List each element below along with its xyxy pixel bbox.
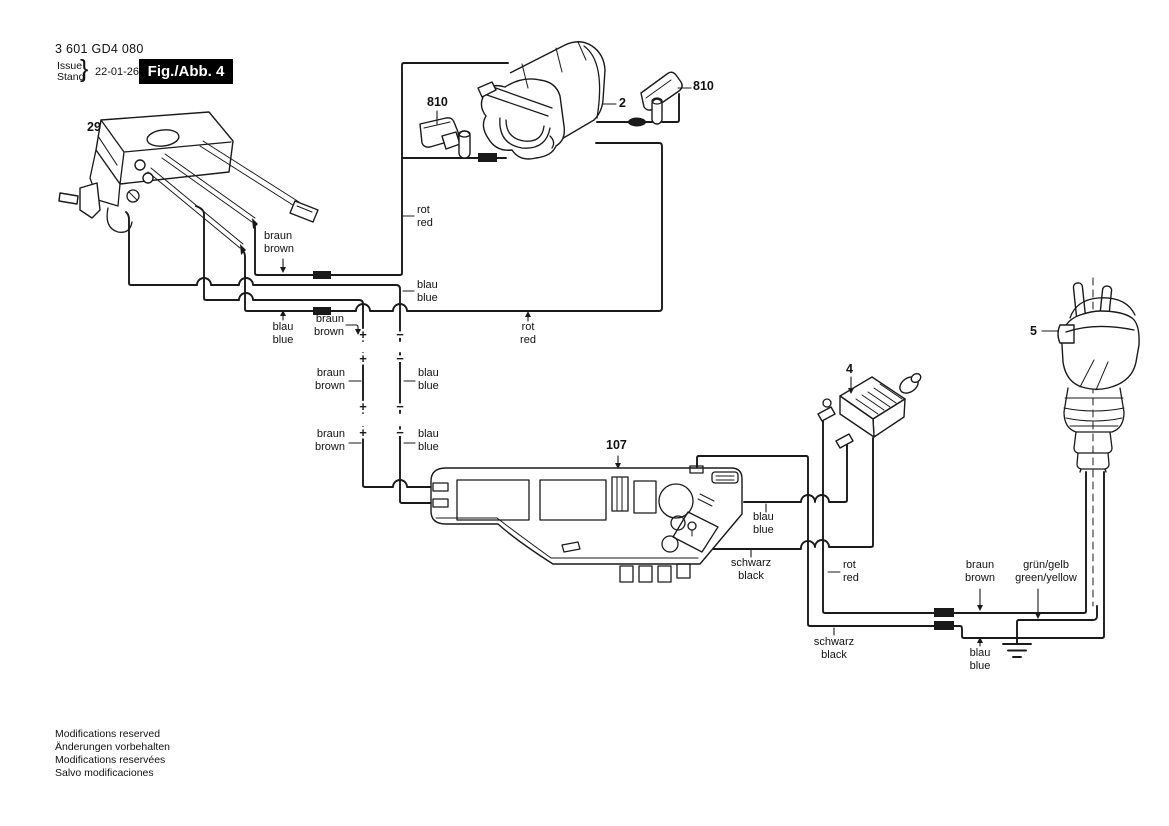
label-de: grün/gelb [1005, 559, 1087, 572]
wire-label-blau-plug: blau blue [964, 647, 996, 672]
part-label-29: 29 [87, 120, 101, 134]
wiring-diagram-canvas: + + + + − − − − [0, 0, 1169, 826]
crimp-left-brush [478, 153, 497, 162]
wire-label-rot-mid: rot red [512, 321, 544, 346]
label-en: blue [417, 292, 438, 305]
wiring-diagram-page: + + + + − − − − [0, 0, 1169, 826]
document-part-number: 3 601 GD4 080 [55, 42, 144, 56]
label-en: brown [958, 572, 1002, 585]
brace-glyph: } [80, 55, 88, 84]
issue-date: 22-01-26 [95, 66, 139, 78]
modifications-notice: Modifications reserved Änderungen vorbeh… [55, 728, 170, 780]
label-en: blue [753, 524, 774, 537]
wire-label-blau-board: blau blue [753, 511, 774, 536]
label-en: red [417, 217, 433, 230]
crimp-rot-braun [934, 608, 954, 617]
figure-badge: Fig./Abb. 4 [139, 59, 233, 84]
crimp-right-brush [628, 118, 646, 127]
label-de: blau [964, 647, 996, 660]
electronics-module-107-drawing [431, 466, 742, 582]
wire-label-braun-riser2: braun brown [300, 428, 345, 453]
wire-rot-module [823, 420, 938, 613]
part-label-4: 4 [846, 362, 853, 376]
label-en: red [843, 572, 859, 585]
label-de: blau [418, 428, 439, 441]
label-en: brown [300, 441, 345, 454]
label-de: rot [512, 321, 544, 334]
earth-ground-symbol [1003, 644, 1031, 657]
label-de: blau [418, 367, 439, 380]
wire-braun-plug [952, 472, 1086, 613]
part-label-2: 2 [619, 96, 626, 110]
label-de: braun [300, 313, 344, 326]
minus-mark: − [396, 399, 404, 414]
label-de: braun [264, 230, 294, 243]
wire-label-gruen-gelb: grün/gelb green/yellow [1005, 559, 1087, 584]
label-en: brown [300, 380, 345, 393]
wire-label-braun-plug: braun brown [958, 559, 1002, 584]
wire-blau-switch [126, 212, 400, 341]
notice-line-de: Änderungen vorbehalten [55, 741, 170, 754]
label-en: blue [418, 380, 439, 393]
wire-label-blau-riser1: blau blue [418, 367, 439, 392]
label-de: blau [753, 511, 774, 524]
part-label-107: 107 [606, 438, 627, 452]
label-en: red [512, 334, 544, 347]
label-en: green/yellow [1005, 572, 1087, 585]
label-de: braun [958, 559, 1002, 572]
wire-label-blau-mid: blau blue [266, 321, 300, 346]
label-de: blau [266, 321, 300, 334]
plus-mark: + [359, 351, 367, 366]
label-de: rot [417, 204, 433, 217]
part-label-810-right: 810 [693, 79, 714, 93]
part-label-810-left: 810 [427, 95, 448, 109]
field-armature-2-drawing [478, 42, 605, 159]
label-en: brown [264, 243, 294, 256]
label-de: braun [300, 428, 345, 441]
wire-label-braun-switch: braun brown [264, 230, 294, 255]
wire-label-rot-top: rot red [417, 204, 433, 229]
crimp-schwarz-blau [934, 621, 954, 630]
brush-left-810-drawing [420, 118, 470, 158]
label-de: schwarz [808, 636, 860, 649]
label-en: brown [300, 326, 344, 339]
notice-line-fr: Modifications reservées [55, 754, 170, 767]
plus-mark: + [359, 425, 367, 440]
minus-mark: − [396, 425, 404, 440]
label-de: rot [843, 559, 859, 572]
plus-mark: + [359, 399, 367, 414]
label-en: black [726, 570, 776, 583]
module-4-drawing [818, 372, 922, 448]
wire-label-schwarz-board: schwarz black [726, 557, 776, 582]
wire-blau-board [744, 443, 847, 502]
brush-right-810-drawing [641, 72, 682, 124]
label-en: black [808, 649, 860, 662]
power-plug-5-drawing [1058, 278, 1139, 606]
polarity-marks: + + + + − − − − [359, 327, 404, 440]
wire-label-rot-module: rot red [843, 559, 859, 584]
label-de: braun [300, 367, 345, 380]
wire-label-schwarz-bottom: schwarz black [808, 636, 860, 661]
label-de: schwarz [726, 557, 776, 570]
notice-line-es: Salvo modificaciones [55, 767, 170, 780]
label-en: blue [266, 334, 300, 347]
label-en: blue [964, 660, 996, 673]
wire-label-braun-plus: braun brown [300, 313, 344, 338]
wire-label-blau-riser2: blau blue [418, 428, 439, 453]
minus-mark: − [396, 351, 404, 366]
notice-line-en: Modifications reserved [55, 728, 170, 741]
wire-label-braun-riser1: braun brown [300, 367, 345, 392]
wire-label-blau-switch: blau blue [417, 279, 438, 304]
label-de: blau [417, 279, 438, 292]
part-label-5: 5 [1030, 324, 1037, 338]
crimp-braun-rot [313, 271, 331, 279]
minus-mark: − [396, 327, 404, 342]
label-en: blue [418, 441, 439, 454]
